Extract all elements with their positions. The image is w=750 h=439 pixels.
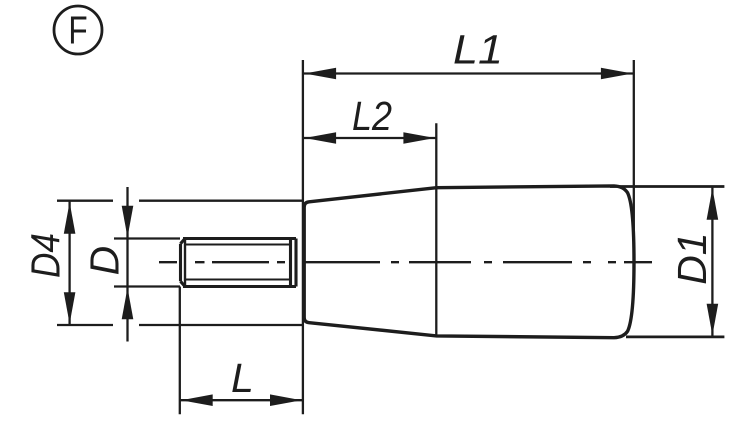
svg-text:F: F [68, 10, 87, 53]
svg-text:L1: L1 [453, 26, 503, 72]
svg-text:D4: D4 [23, 233, 69, 278]
svg-text:L2: L2 [352, 93, 392, 139]
svg-text:D: D [82, 246, 128, 276]
svg-text:L: L [231, 355, 254, 401]
svg-text:D1: D1 [669, 232, 715, 284]
